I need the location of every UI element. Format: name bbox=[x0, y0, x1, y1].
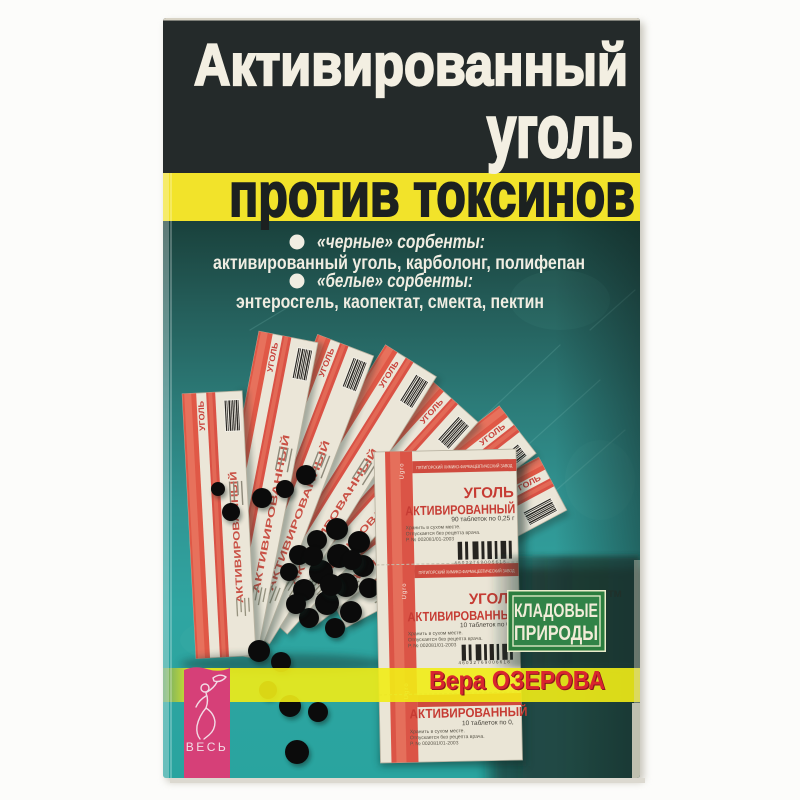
svg-text:«белые» сорбенты:: «белые» сорбенты: bbox=[317, 271, 473, 292]
svg-text:КЛАДОВЫЕ: КЛАДОВЫЕ bbox=[514, 601, 598, 622]
svg-text:10 таблеток по 0,: 10 таблеток по 0, bbox=[462, 718, 514, 727]
svg-text:Р. № 002081/01-2003: Р. № 002081/01-2003 bbox=[410, 740, 459, 747]
svg-text:Ugro: Ugro bbox=[402, 583, 408, 600]
svg-text:Активированный: Активированный bbox=[194, 33, 628, 98]
svg-text:Р. № 002081/01-2003: Р. № 002081/01-2003 bbox=[408, 642, 457, 649]
svg-text:ВЕСЬ: ВЕСЬ bbox=[186, 740, 229, 754]
svg-text:90 таблеток по 0,25 г: 90 таблеток по 0,25 г bbox=[451, 514, 515, 523]
svg-text:Вера ОЗЕРОВА: Вера ОЗЕРОВА bbox=[429, 665, 605, 695]
svg-text:ТМ: ТМ bbox=[608, 589, 622, 600]
svg-text:УГОЛЬ: УГОЛЬ bbox=[463, 484, 514, 502]
svg-text:энтеросгель, каопектат, смекта: энтеросгель, каопектат, смекта, пектин bbox=[236, 292, 544, 313]
svg-text:Р. № 002081/01-2003: Р. № 002081/01-2003 bbox=[406, 536, 455, 543]
svg-text:«черные» сорбенты:: «черные» сорбенты: bbox=[317, 232, 485, 253]
svg-text:УГОЛЬ: УГОЛЬ bbox=[197, 400, 208, 431]
svg-text:ПРИРОДЫ: ПРИРОДЫ bbox=[514, 622, 598, 645]
svg-text:Ugro: Ugro bbox=[399, 463, 405, 480]
svg-text:уголь: уголь bbox=[487, 90, 633, 173]
